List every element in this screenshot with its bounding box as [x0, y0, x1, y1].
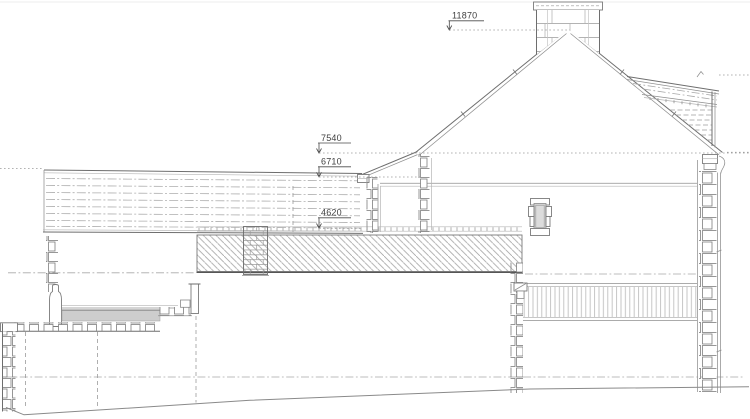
window [529, 199, 552, 236]
brick-chimney-section [244, 227, 268, 275]
window-jamb-right-lower [546, 217, 550, 227]
terrace-slab [62, 310, 160, 322]
terrace-step-block [181, 300, 191, 307]
lean-to-left-quoins [367, 177, 378, 233]
window-jamb-right-upper [546, 207, 552, 217]
hopper-outlet [517, 291, 524, 299]
terrace-post [191, 284, 199, 314]
dimension-label: 6710 [321, 157, 342, 167]
main-left-corner-quoins [419, 154, 430, 233]
window-jamb-left-lower [530, 217, 534, 227]
pier-quoins [511, 262, 524, 393]
cornice-block [704, 164, 716, 170]
left-wall-quoins [46, 236, 58, 292]
right-corner-quoins [699, 171, 717, 392]
slat-band [523, 287, 697, 317]
boundary-wall-quoins [3, 332, 16, 412]
dimension-label: 11870 [452, 11, 477, 21]
elevation-drawing-canvas: 11870 7540 6710 4620 [0, 0, 750, 419]
dimension-label: 4620 [321, 208, 342, 218]
dimension-label: 7540 [321, 133, 342, 143]
building-section-elevation: 11870 7540 6710 4620 [0, 0, 750, 419]
terrace-step-coping [158, 307, 191, 316]
boundary-wall-cap [1, 323, 18, 332]
window-sill [531, 229, 550, 236]
window-jamb-left-upper [529, 207, 535, 217]
window-frame [536, 205, 544, 227]
terrace-wall-coping [14, 322, 158, 331]
